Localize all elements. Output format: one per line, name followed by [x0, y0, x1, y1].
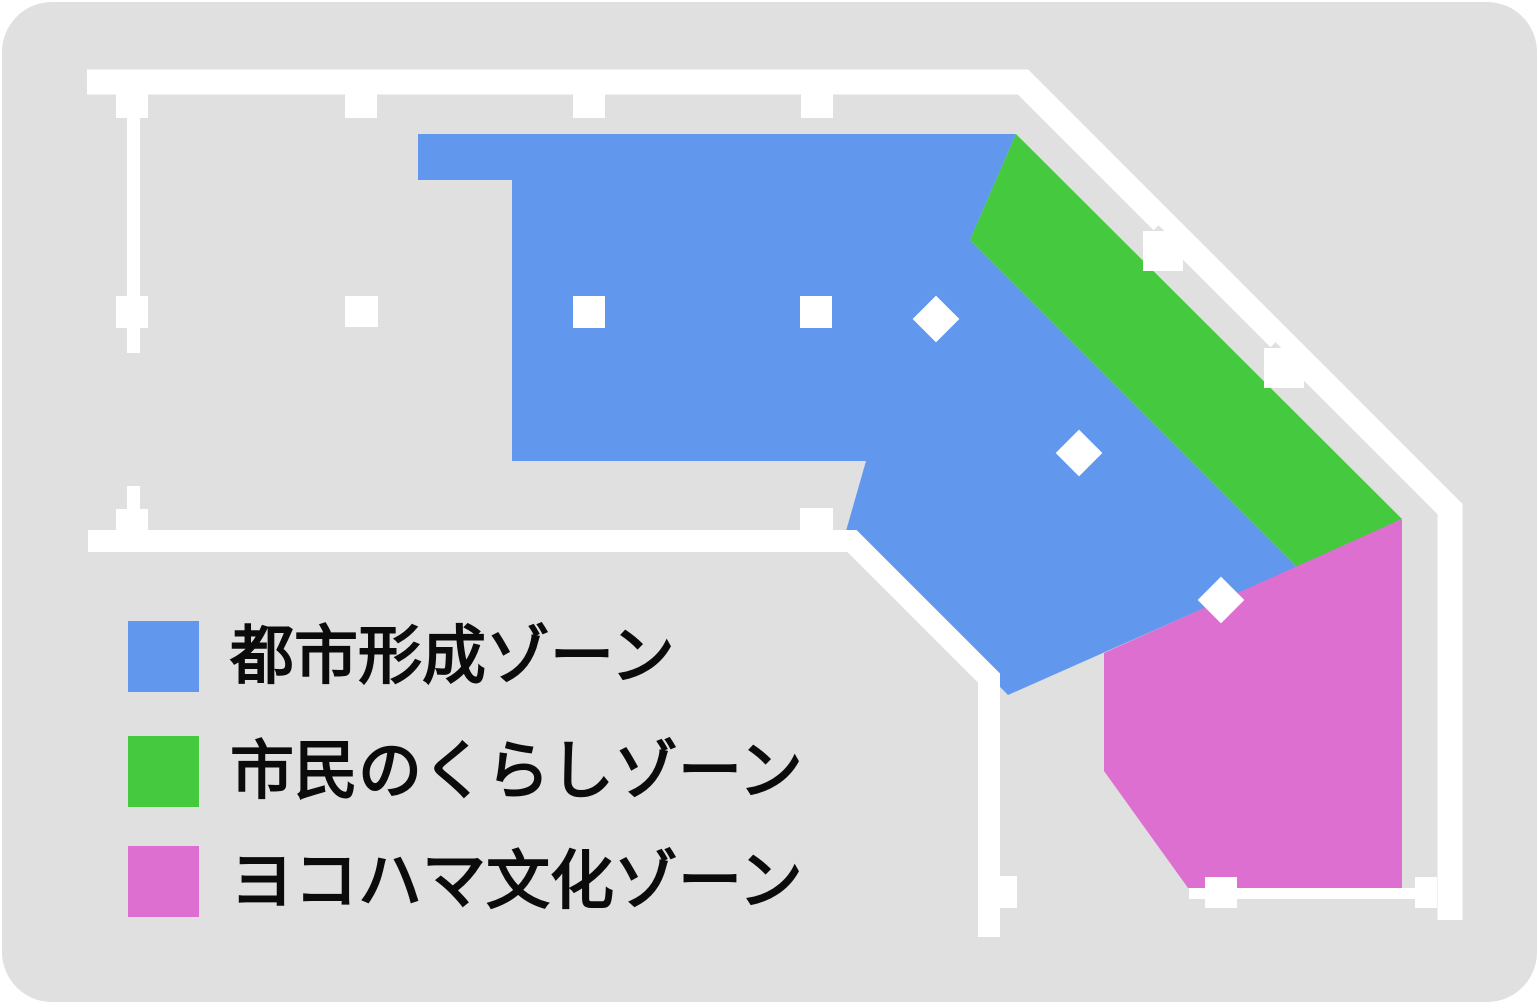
column-marker-icon [345, 296, 378, 327]
door-tab-icon [1264, 348, 1304, 388]
wall-tab-icon [573, 94, 605, 118]
wall-tab-icon [116, 509, 148, 530]
left-wall-line [127, 486, 140, 509]
column-marker-icon [116, 296, 148, 328]
wall-tab-icon [116, 94, 148, 118]
wall-tab-icon [345, 94, 377, 118]
wall-tab-icon [1415, 877, 1437, 908]
left-wall-line [127, 328, 140, 353]
wall-tab-icon [801, 94, 833, 118]
door-tab-icon [1143, 231, 1183, 271]
left-wall-line [127, 118, 140, 296]
column-marker-icon [800, 296, 832, 328]
wall-tab-icon [1205, 877, 1237, 908]
column-marker-icon [573, 296, 605, 328]
floor-plan-map [0, 0, 1539, 1004]
floor-map-page: 都市形成ゾーン 市民のくらしゾーン ヨコハマ文化ゾーン [0, 0, 1539, 1004]
wall-tab-icon [800, 508, 833, 533]
wall-tab-icon [998, 876, 1017, 908]
